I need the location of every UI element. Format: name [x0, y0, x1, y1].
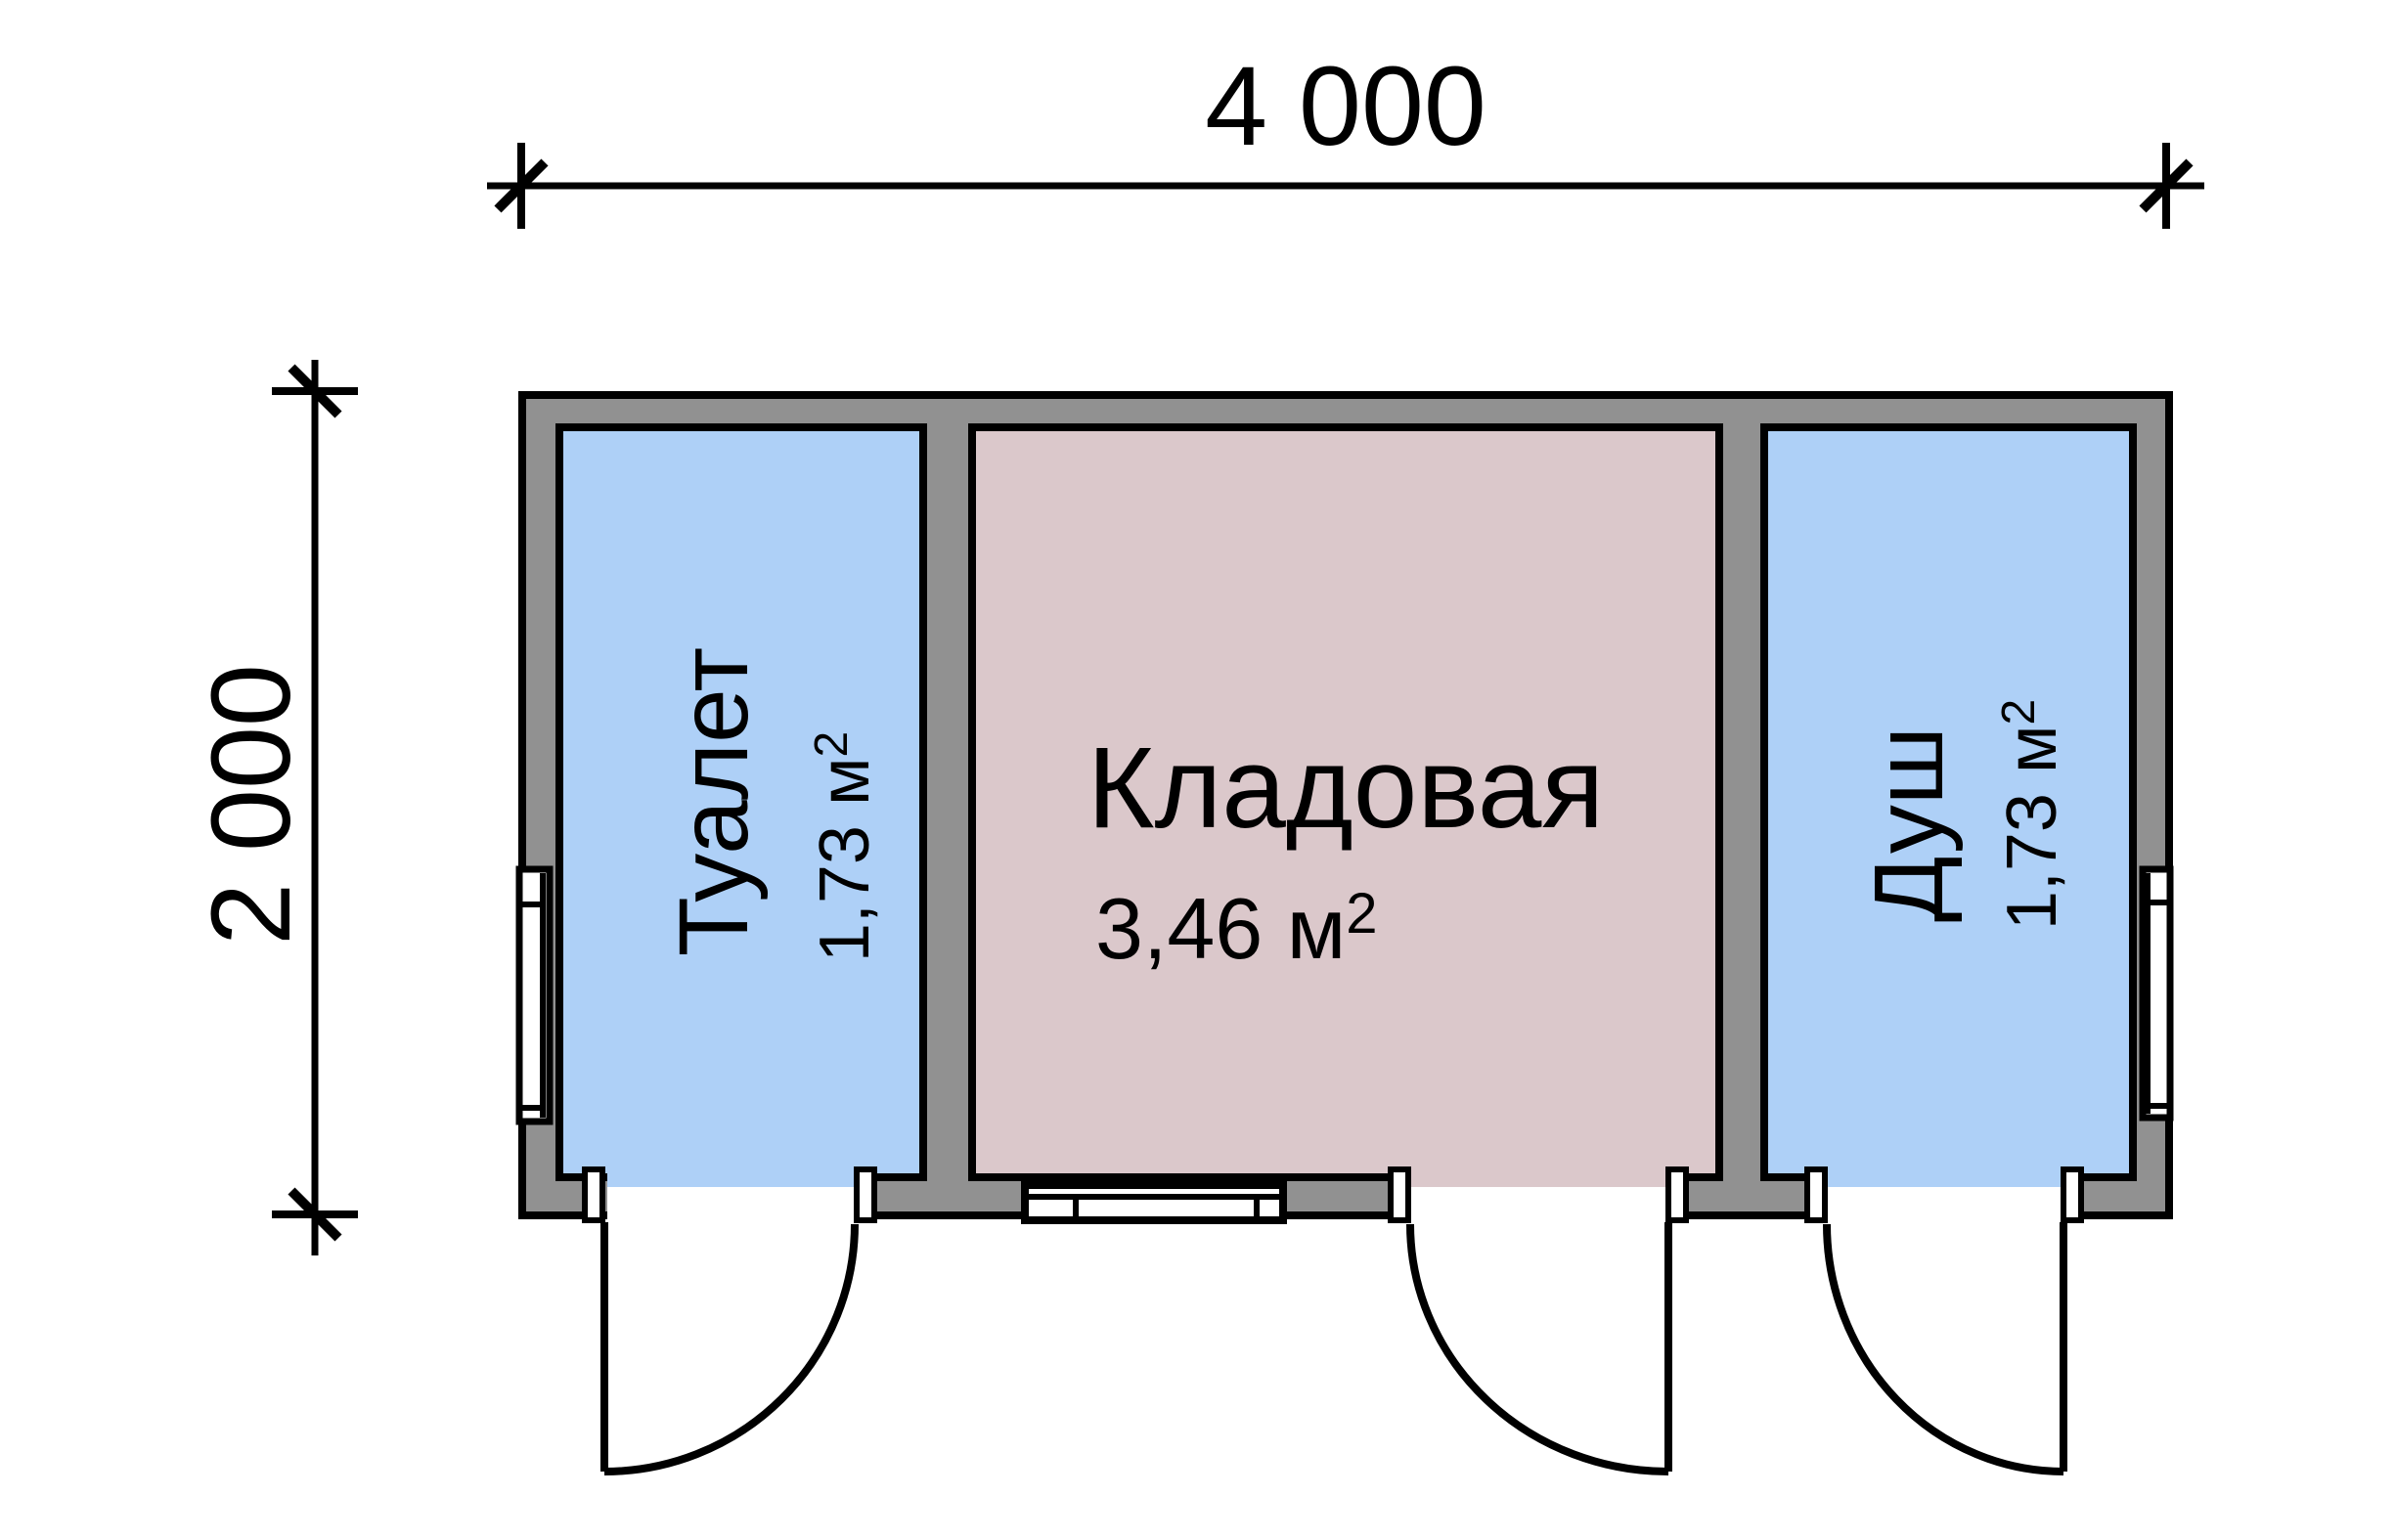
door-toilet-opening — [607, 1187, 856, 1228]
window-bottom — [1025, 1185, 1283, 1220]
door-toilet-threshold — [607, 1173, 856, 1187]
room-storage-area-value: 3,46 м — [1095, 880, 1346, 977]
window-right — [2143, 869, 2170, 1118]
door-storage-opening — [1411, 1187, 1665, 1228]
room-storage-label: Кладовая — [1087, 724, 1605, 853]
floor-plan-drawing: 4 000 2 000 — [0, 0, 2395, 1540]
door-storage-jamb-right — [1668, 1169, 1686, 1220]
room-toilet-area-sup: 2 — [806, 731, 858, 758]
room-shower-area-sup: 2 — [1993, 699, 2045, 726]
dimension-left-label: 2 000 — [189, 664, 314, 946]
room-toilet-area-value: 1,73 м — [806, 758, 884, 963]
room-storage-area-sup: 2 — [1346, 882, 1377, 946]
door-storage-jamb-left — [1391, 1169, 1408, 1220]
door-toilet-jamb-left — [585, 1169, 602, 1220]
door-storage-threshold — [1411, 1173, 1665, 1187]
room-toilet-label: Туалет — [659, 647, 769, 956]
door-toilet-jamb-right — [857, 1169, 874, 1220]
door-shower-jamb-right — [2063, 1169, 2081, 1220]
room-shower-label: Душ — [1854, 726, 1964, 922]
dimension-top-label: 4 000 — [1205, 44, 1486, 169]
door-shower-opening — [1828, 1187, 2061, 1228]
door-shower-jamb-left — [1807, 1169, 1825, 1220]
room-toilet-area: 1,73 м2 — [806, 731, 884, 962]
room-storage-area: 3,46 м2 — [1095, 880, 1378, 977]
room-shower-area: 1,73 м2 — [1993, 699, 2071, 930]
window-left — [519, 869, 550, 1122]
window-bottom-frame — [1025, 1185, 1283, 1220]
room-shower-area-value: 1,73 м — [1993, 726, 2071, 931]
floor-plan-page: 4 000 2 000 — [0, 0, 2395, 1540]
door-shower-threshold — [1828, 1173, 2061, 1187]
